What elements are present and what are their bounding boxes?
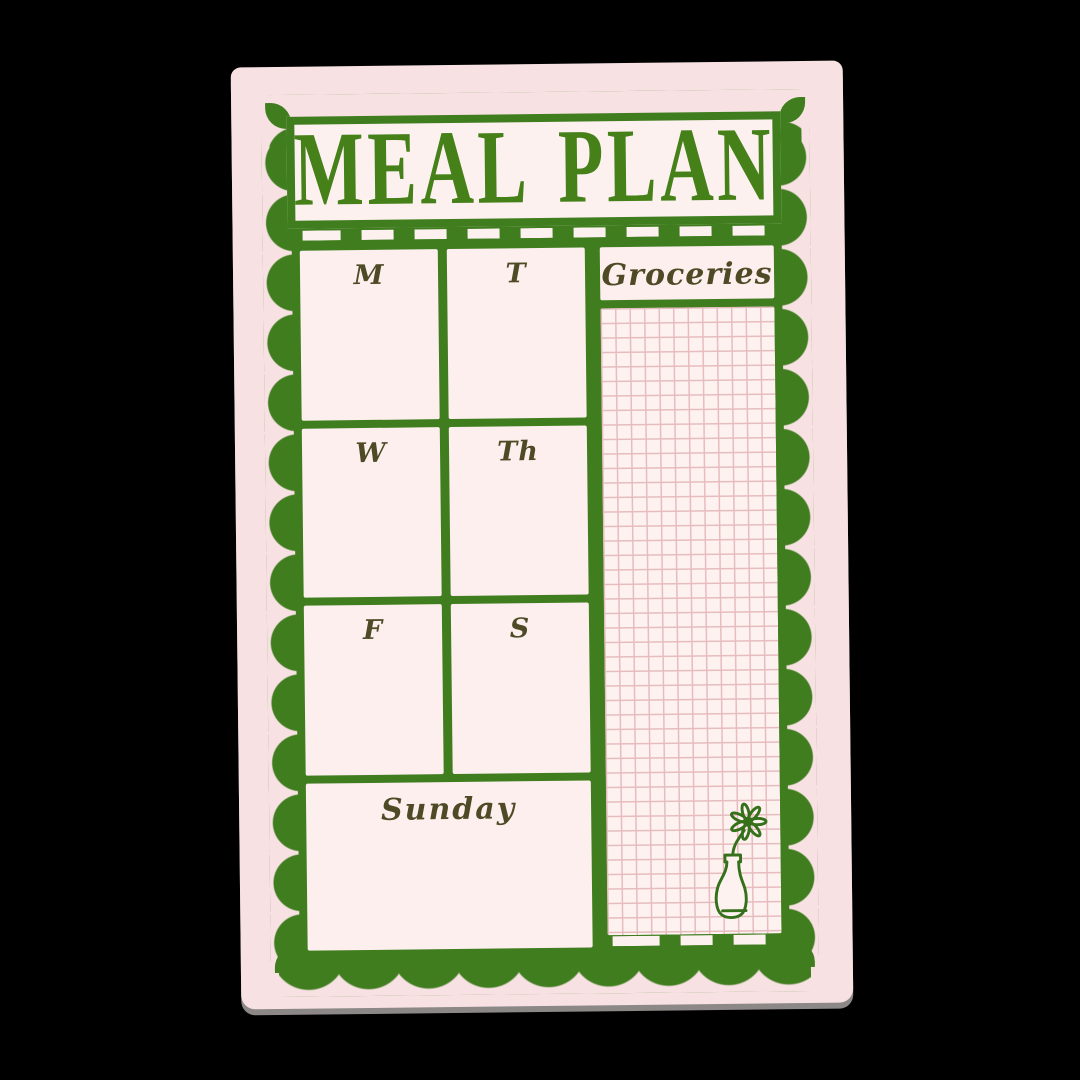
meal-plan-notepad: MEAL PLAN M T W Th F S Sunday Groceries — [231, 61, 854, 1010]
day-cell-wednesday: W — [302, 427, 442, 598]
day-cell-thursday: Th — [449, 425, 589, 596]
day-label-thursday: Th — [449, 425, 587, 468]
dash-strip-bottom — [608, 934, 782, 946]
day-label-friday: F — [304, 604, 442, 647]
page-title: MEAL PLAN — [293, 111, 775, 228]
day-label-monday: M — [300, 249, 438, 292]
groceries-grid-paper — [600, 306, 781, 935]
groceries-header: Groceries — [600, 245, 775, 300]
day-label-tuesday: T — [447, 247, 585, 290]
day-label-wednesday: W — [302, 427, 440, 470]
day-label-saturday: S — [451, 602, 589, 645]
day-cell-tuesday: T — [447, 247, 587, 419]
day-label-sunday: Sunday — [306, 780, 591, 828]
day-cell-monday: M — [300, 249, 440, 421]
day-cell-sunday: Sunday — [306, 780, 593, 950]
groceries-label: Groceries — [601, 252, 772, 293]
title-banner: MEAL PLAN — [286, 111, 781, 229]
day-cell-saturday: S — [451, 602, 591, 774]
flower-in-vase-icon — [692, 793, 778, 932]
day-cell-friday: F — [304, 604, 444, 776]
photo-background: MEAL PLAN M T W Th F S Sunday Groceries — [0, 0, 1080, 1080]
